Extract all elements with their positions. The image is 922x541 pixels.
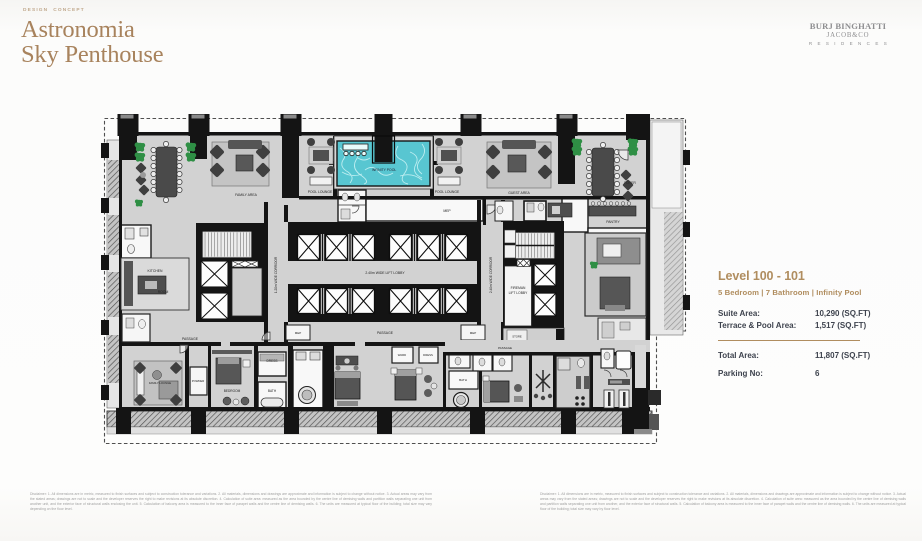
svg-text:INFINITY POOL: INFINITY POOL (372, 168, 397, 172)
svg-text:GUEST AREA: GUEST AREA (508, 191, 530, 195)
svg-text:2.40m WIDE LIFT LOBBY: 2.40m WIDE LIFT LOBBY (365, 271, 405, 275)
svg-text:2.40m WIDE CORRIDOR: 2.40m WIDE CORRIDOR (489, 256, 493, 293)
svg-text:BATH: BATH (268, 389, 277, 393)
svg-text:PASSAGE: PASSAGE (377, 331, 394, 335)
svg-text:POOL LOUNGE: POOL LOUNGE (308, 190, 333, 194)
svg-text:FIREMAN: FIREMAN (511, 286, 526, 290)
svg-text:PASSAGE: PASSAGE (498, 346, 512, 350)
svg-text:DRESS: DRESS (423, 353, 433, 357)
svg-text:MEP: MEP (443, 209, 451, 213)
svg-text:WARD: WARD (398, 353, 406, 357)
svg-text:FAMILY AREA: FAMILY AREA (235, 193, 257, 197)
svg-text:POOL LOUNGE: POOL LOUNGE (435, 190, 460, 194)
svg-text:LIFT LOBBY: LIFT LOBBY (509, 291, 528, 295)
svg-text:1.20m WIDE CORRIDOR: 1.20m WIDE CORRIDOR (274, 256, 278, 293)
svg-text:FOYER: FOYER (624, 181, 636, 185)
svg-text:BEDROOM: BEDROOM (224, 389, 241, 393)
svg-text:FAMILY LOUNGE: FAMILY LOUNGE (149, 381, 171, 385)
svg-text:PASSAGE: PASSAGE (182, 337, 199, 341)
svg-text:DRESS: DRESS (267, 359, 278, 363)
svg-text:BATH: BATH (459, 378, 467, 382)
svg-text:STORE: STORE (512, 335, 522, 339)
svg-text:ROOM: ROOM (158, 290, 169, 294)
svg-text:PANTRY: PANTRY (606, 220, 620, 224)
svg-text:KITCHEN: KITCHEN (148, 269, 163, 273)
svg-text:MEP: MEP (295, 331, 302, 335)
svg-text:MEP: MEP (470, 331, 477, 335)
svg-text:POWDER: POWDER (192, 379, 205, 383)
